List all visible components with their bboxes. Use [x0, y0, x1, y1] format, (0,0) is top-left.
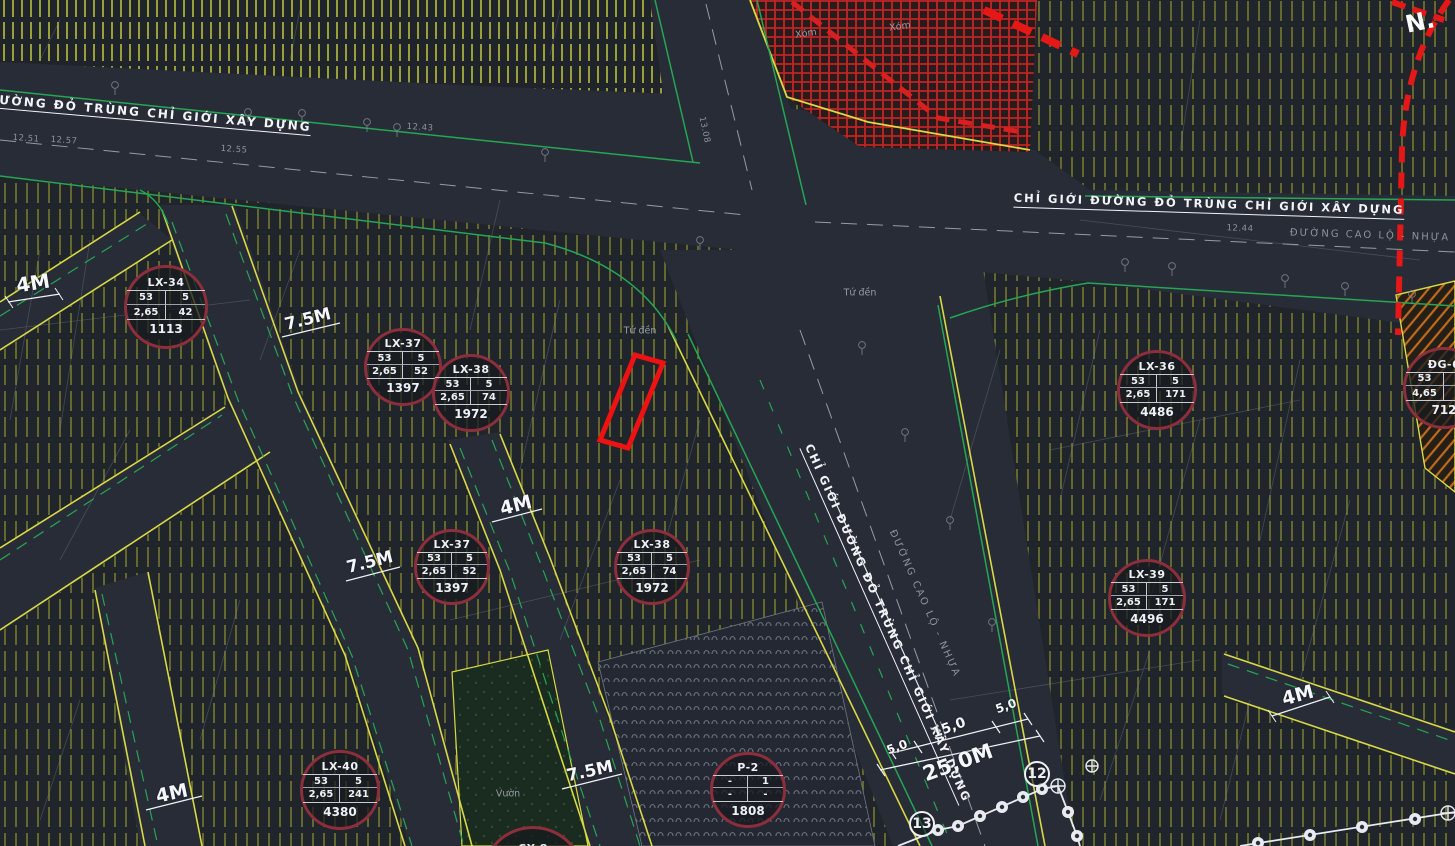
corner-label-0: N.: [1403, 7, 1437, 37]
parcel-cell: 5: [1444, 373, 1455, 387]
parcel-label-CX-8[interactable]: CX-8: [481, 826, 585, 846]
parcel-data-table: 53 5 2,65 74: [435, 377, 507, 405]
parcel-cell: 5: [452, 553, 487, 566]
parcel-cell: 2,65: [417, 565, 452, 578]
parcel-area: 1972: [435, 405, 507, 429]
parcel-cell: 2,65: [617, 565, 652, 578]
parcel-name: CX-8: [484, 829, 582, 846]
parcel-label-LX-38[interactable]: LX-38 53 5 2,65 74 1972: [614, 529, 690, 605]
parcel-name: ĐG-6: [1406, 350, 1455, 372]
parcel-cell: 5: [166, 291, 205, 305]
parcel-cell: 5: [652, 553, 687, 566]
parcel-label-LX-38[interactable]: LX-38 53 5 2,65 74 1972: [432, 354, 510, 432]
parcel-cell: 53: [417, 553, 452, 566]
place-label-4: Vườn: [496, 789, 520, 799]
parcel-cell: 2,65: [303, 788, 340, 801]
parcel-name: LX-38: [435, 357, 507, 377]
parcel-cell: 53: [1406, 373, 1444, 387]
parcel-label-LX-40[interactable]: LX-40 53 5 2,65 241 4380: [300, 750, 380, 830]
parcel-cell: 5: [1147, 583, 1183, 596]
dim-label-9: 5,0: [994, 697, 1018, 716]
survey-label-2: 12.55: [220, 145, 247, 155]
parcel-area: 712: [1406, 401, 1455, 426]
parcel-label-LX-39[interactable]: LX-39 53 5 2,65 171 4496: [1108, 559, 1186, 637]
road-label-0: CHỈ GIỚI ĐƯỜNG ĐỎ TRÙNG CHỈ GIỚI XÂY DỰN…: [0, 86, 312, 136]
parcel-cell: 53: [367, 352, 403, 365]
cad-plan-viewport[interactable]: CHỈ GIỚI ĐƯỜNG ĐỎ TRÙNG CHỈ GIỚI XÂY DỰN…: [0, 0, 1455, 846]
parcel-name: LX-34: [127, 268, 205, 290]
parcel-cell: 2,65: [1111, 596, 1147, 609]
parcel-label-LX-34[interactable]: LX-34 53 5 2,65 42 1113: [124, 265, 208, 349]
dim-label-1: 7.5M: [283, 306, 333, 334]
parcel-cell: 53: [303, 775, 340, 788]
road-label-1: CHỈ GIỚI ĐƯỜNG ĐỎ TRÙNG CHỈ GIỚI XÂY DỰN…: [1013, 193, 1404, 220]
parcel-cell: -: [713, 788, 748, 801]
parcel-name: LX-37: [367, 331, 439, 351]
parcel-data-table: 53 5 2,65 74: [617, 552, 687, 579]
parcel-cell: 53: [435, 378, 471, 391]
survey-point-12: 12: [1024, 761, 1050, 787]
annotation-overlay: CHỈ GIỚI ĐƯỜNG ĐỎ TRÙNG CHỈ GIỚI XÂY DỰN…: [0, 0, 1455, 846]
parcel-cell: 42: [166, 305, 205, 319]
parcel-area: 1113: [127, 320, 205, 346]
dim-label-7: 5,0: [885, 738, 909, 757]
road-label-2: CHỈ GIỚI ĐƯỜNG ĐỎ TRÙNG CHỈ GIỚI XÂY DỰN…: [800, 443, 972, 806]
parcel-area: 1397: [367, 379, 439, 403]
parcel-cell: 74: [652, 565, 687, 578]
dim-label-3: 7.5M: [345, 549, 395, 577]
parcel-name: LX-38: [617, 532, 687, 552]
parcel-cell: 5: [471, 378, 507, 391]
survey-label-4: 13.08: [697, 116, 711, 144]
dim-label-4: 7.5M: [565, 759, 615, 785]
parcel-cell: 53: [617, 553, 652, 566]
place-label-1: Tứ đền: [844, 288, 877, 298]
parcel-cell: 5: [1157, 375, 1194, 388]
parcel-label-P-2[interactable]: P-2 - 1 - - 1808: [710, 752, 786, 828]
parcel-cell: -: [748, 788, 783, 801]
parcel-data-table: 53 5 2,65 171: [1111, 582, 1183, 610]
parcel-name: LX-39: [1111, 562, 1183, 582]
dim-label-6: 4M: [1280, 683, 1316, 710]
parcel-data-table: 53 5 2,65 52: [367, 351, 439, 379]
parcel-label-LX-37[interactable]: LX-37 53 5 2,65 52 1397: [364, 328, 442, 406]
place-label-3: Xóm: [889, 21, 912, 33]
parcel-cell: 171: [1157, 388, 1194, 401]
place-label-2: Xóm: [795, 28, 818, 40]
parcel-cell: -: [713, 776, 748, 789]
parcel-cell: 5: [340, 775, 377, 788]
parcel-cell: [1444, 386, 1455, 400]
parcel-cell: 1: [748, 776, 783, 789]
dim-label-2: 4M: [498, 493, 534, 519]
parcel-cell: 53: [1120, 375, 1157, 388]
parcel-label-LX-37[interactable]: LX-37 53 5 2,65 52 1397: [414, 529, 490, 605]
parcel-label-LX-36[interactable]: LX-36 53 5 2,65 171 4486: [1117, 350, 1197, 430]
survey-label-5: 12.44: [1226, 224, 1253, 233]
parcel-area: 4496: [1111, 610, 1183, 634]
parcel-cell: 5: [403, 352, 439, 365]
parcel-data-table: - 1 - -: [713, 775, 783, 802]
parcel-area: 1397: [417, 579, 487, 602]
dim-label-0: 4M: [15, 270, 52, 295]
place-label-0: Tứ đền: [624, 326, 657, 336]
parcel-name: LX-36: [1120, 353, 1194, 374]
survey-point-13: 13: [909, 811, 935, 837]
parcel-cell: 241: [340, 788, 377, 801]
parcel-data-table: 53 5 2,65 171: [1120, 374, 1194, 403]
parcel-cell: 2,65: [1120, 388, 1157, 401]
parcel-label-ĐG-6[interactable]: ĐG-6 53 5 4,65 712: [1403, 347, 1455, 429]
parcel-cell: 2,65: [127, 305, 166, 319]
parcel-data-table: 53 5 2,65 52: [417, 552, 487, 579]
parcel-data-table: 53 5 4,65: [1406, 372, 1455, 401]
dim-label-5: 4M: [154, 781, 189, 806]
road-label-3: ĐƯỜNG CAO LỘ - NHỰA: [1290, 228, 1451, 243]
parcel-cell: 74: [471, 391, 507, 404]
parcel-area: 4380: [303, 803, 377, 827]
parcel-cell: 53: [127, 291, 166, 305]
parcel-cell: 4,65: [1406, 386, 1444, 400]
parcel-cell: 2,65: [435, 391, 471, 404]
survey-label-3: 12.43: [406, 123, 433, 133]
parcel-data-table: 53 5 2,65 241: [303, 774, 377, 803]
parcel-area: 1972: [617, 579, 687, 602]
parcel-cell: 52: [403, 365, 439, 378]
parcel-cell: 53: [1111, 583, 1147, 596]
parcel-name: LX-40: [303, 753, 377, 774]
parcel-area: 1808: [713, 802, 783, 825]
parcel-cell: 2,65: [367, 365, 403, 378]
parcel-name: P-2: [713, 755, 783, 775]
parcel-area: 4486: [1120, 403, 1194, 427]
parcel-data-table: 53 5 2,65 42: [127, 290, 205, 320]
survey-label-0: 12.51: [12, 134, 39, 144]
parcel-name: LX-37: [417, 532, 487, 552]
parcel-cell: 171: [1147, 596, 1183, 609]
survey-label-1: 12.57: [50, 136, 77, 146]
parcel-cell: 52: [452, 565, 487, 578]
